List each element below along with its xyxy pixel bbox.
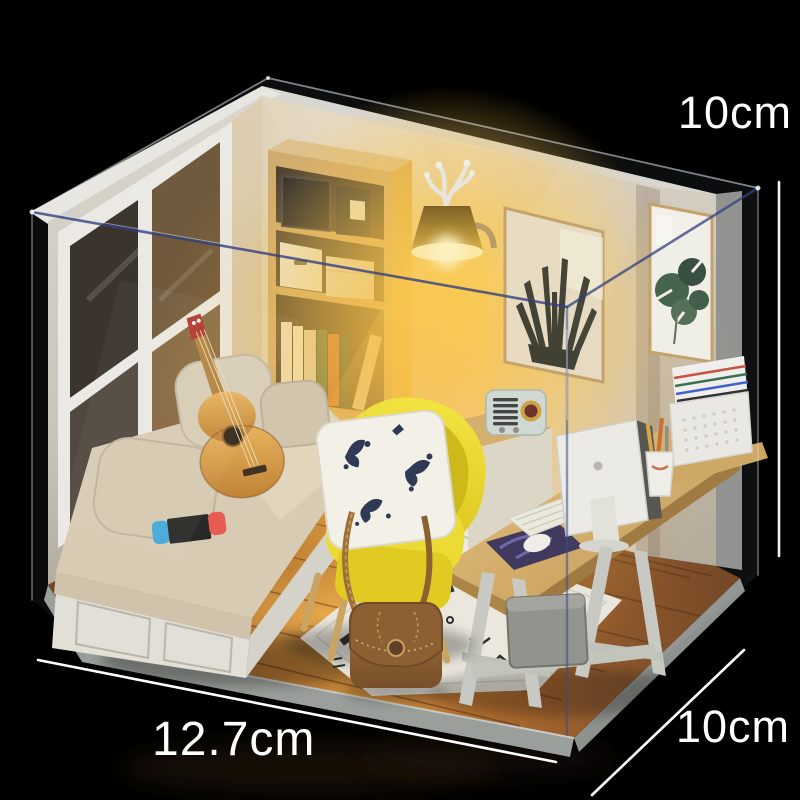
product-photo: 10cm 12.7cm 10cm [0,0,800,800]
height-label: 10cm [678,90,792,135]
acrylic-dust-cover [30,76,761,736]
depth-label: 10cm [676,704,790,749]
width-label: 12.7cm [152,716,315,764]
